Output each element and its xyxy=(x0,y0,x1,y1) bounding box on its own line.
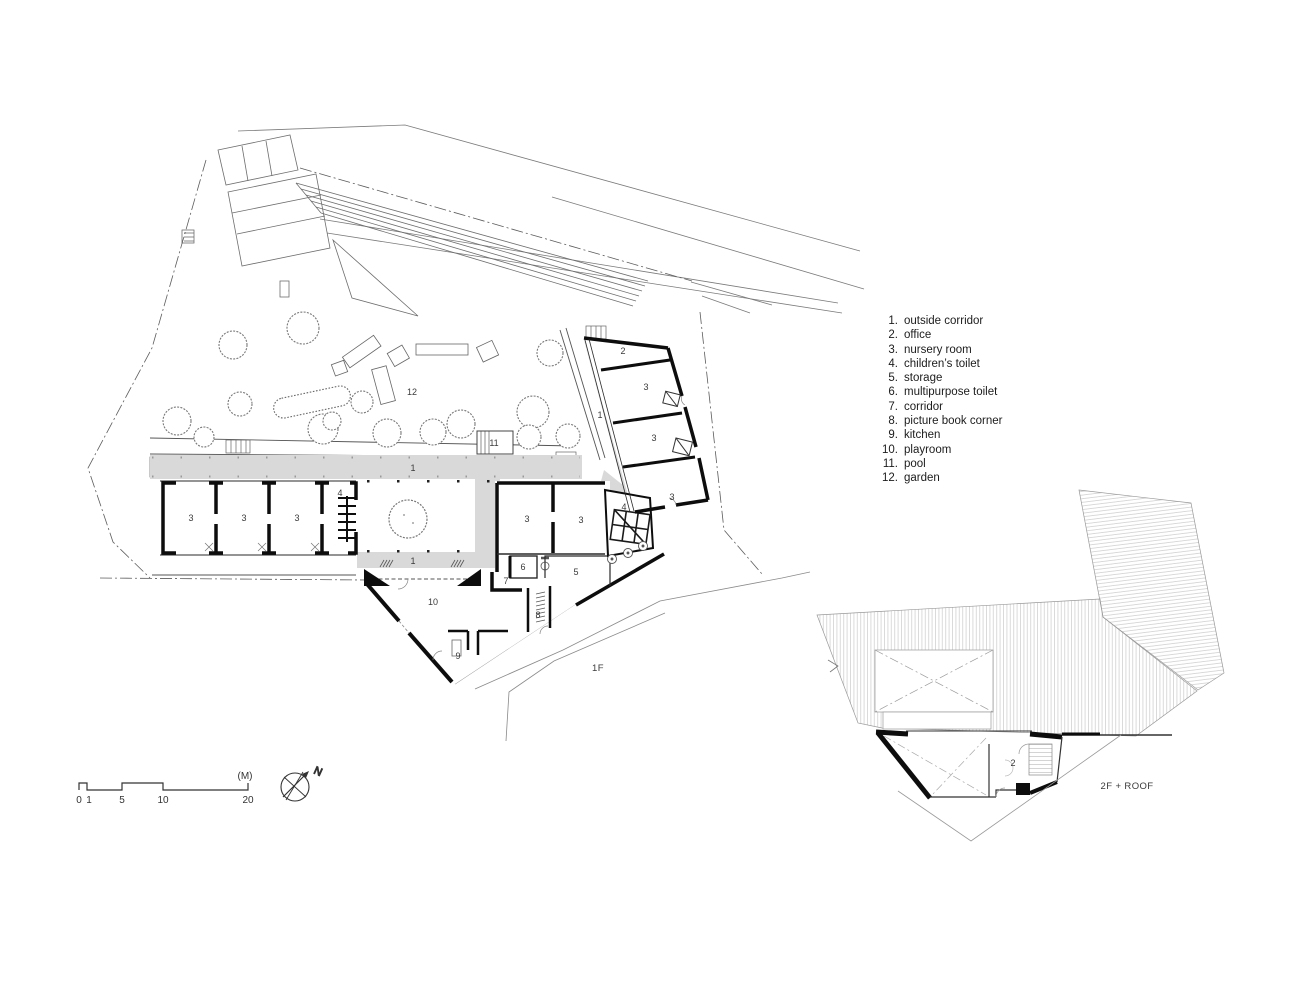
courtyard-tree xyxy=(389,500,427,538)
legend-item-number: 6. xyxy=(878,385,898,399)
label-storage: 5 xyxy=(573,567,578,577)
legend-item-4: 4.children’s toilet xyxy=(878,357,1002,371)
legend-item-label: storage xyxy=(904,371,942,385)
scale-tick-10: 10 xyxy=(157,795,169,806)
legend-item-label: children’s toilet xyxy=(904,357,980,371)
legend-item-2: 2.office xyxy=(878,328,1002,342)
legend-item-12: 12.garden xyxy=(878,471,1002,485)
legend-item-number: 5. xyxy=(878,371,898,385)
label-playroom: 10 xyxy=(428,597,438,607)
floor-label-2f: 2F + ROOF xyxy=(1101,781,1154,792)
legend-item-11: 11.pool xyxy=(878,457,1002,471)
scale-bar: (M) 0 1 5 10 20 xyxy=(76,771,254,806)
scale-tick-20: 20 xyxy=(242,795,254,806)
label-pool: 11 xyxy=(489,438,498,448)
legend-item-number: 11. xyxy=(878,457,898,471)
scale-tick-1: 1 xyxy=(86,795,92,806)
legend-item-5: 5.storage xyxy=(878,371,1002,385)
label-nursery-d: 3 xyxy=(524,514,529,524)
legend-item-number: 12. xyxy=(878,471,898,485)
label-corridor7: 7 xyxy=(503,576,508,586)
scale-tick-5: 5 xyxy=(119,795,125,806)
plan-drawing: 12 11 1 1 1 2 3 3 3 4 3 3 4 5 6 7 8 9 10… xyxy=(0,0,1305,1000)
legend-item-9: 9.kitchen xyxy=(878,428,1002,442)
label-nursery-a: 3 xyxy=(188,513,193,523)
courtyard xyxy=(367,480,490,553)
label-nursery-g: 3 xyxy=(651,433,656,443)
legend-item-label: outside corridor xyxy=(904,314,983,328)
legend-item-label: office xyxy=(904,328,931,342)
legend-item-label: playroom xyxy=(904,443,951,457)
floor-label-1f: 1F xyxy=(592,663,604,674)
label-office: 2 xyxy=(620,346,625,356)
play-equipment xyxy=(272,335,499,420)
legend-item-number: 2. xyxy=(878,328,898,342)
legend-item-number: 9. xyxy=(878,428,898,442)
label-nursery-b: 3 xyxy=(241,513,246,523)
room-legend: 1.outside corridor2.office3.nursery room… xyxy=(878,314,1002,486)
legend-item-8: 8.picture book corner xyxy=(878,414,1002,428)
label-corridor-bottom: 1 xyxy=(410,556,415,566)
floor-plan-sheet: 12 11 1 1 1 2 3 3 3 4 3 3 4 5 6 7 8 9 10… xyxy=(0,0,1305,1000)
legend-item-number: 10. xyxy=(878,443,898,457)
label-nursery-c: 3 xyxy=(294,513,299,523)
label-corridor-right: 1 xyxy=(597,410,602,420)
legend-item-number: 7. xyxy=(878,400,898,414)
north-label: N xyxy=(312,765,324,779)
label-office-2f: 2 xyxy=(1010,758,1015,768)
legend-item-number: 1. xyxy=(878,314,898,328)
label-corridor-top: 1 xyxy=(410,463,415,473)
legend-item-label: pool xyxy=(904,457,926,471)
legend-item-number: 8. xyxy=(878,414,898,428)
scale-tick-0: 0 xyxy=(76,795,82,806)
legend-item-1: 1.outside corridor xyxy=(878,314,1002,328)
garden-trees xyxy=(163,312,640,449)
legend-item-6: 6.multipurpose toilet xyxy=(878,385,1002,399)
legend-item-label: multipurpose toilet xyxy=(904,385,997,399)
label-nursery-f: 3 xyxy=(643,382,648,392)
legend-item-number: 4. xyxy=(878,357,898,371)
legend-item-label: nursery room xyxy=(904,343,972,357)
legend-item-10: 10.playroom xyxy=(878,443,1002,457)
label-book-corner: 8 xyxy=(535,610,540,620)
label-nursery-e: 3 xyxy=(578,515,583,525)
label-kitchen: 9 xyxy=(455,651,460,661)
legend-item-label: garden xyxy=(904,471,940,485)
label-garden: 12 xyxy=(407,387,417,397)
legend-item-3: 3.nursery room xyxy=(878,343,1002,357)
label-toilet-center: 4 xyxy=(621,502,626,512)
plan-2f-roof xyxy=(817,490,1224,841)
legend-item-number: 3. xyxy=(878,343,898,357)
north-compass: N xyxy=(281,765,324,801)
legend-item-label: picture book corner xyxy=(904,414,1002,428)
label-nursery-h: 3 xyxy=(669,492,674,502)
neighbor-building xyxy=(182,135,648,316)
label-mp-toilet: 6 xyxy=(520,562,525,572)
scale-unit: (M) xyxy=(238,771,253,782)
legend-item-label: kitchen xyxy=(904,428,940,442)
legend-item-label: corridor xyxy=(904,400,943,414)
legend-item-7: 7.corridor xyxy=(878,400,1002,414)
label-toilet-left: 4 xyxy=(337,488,342,498)
